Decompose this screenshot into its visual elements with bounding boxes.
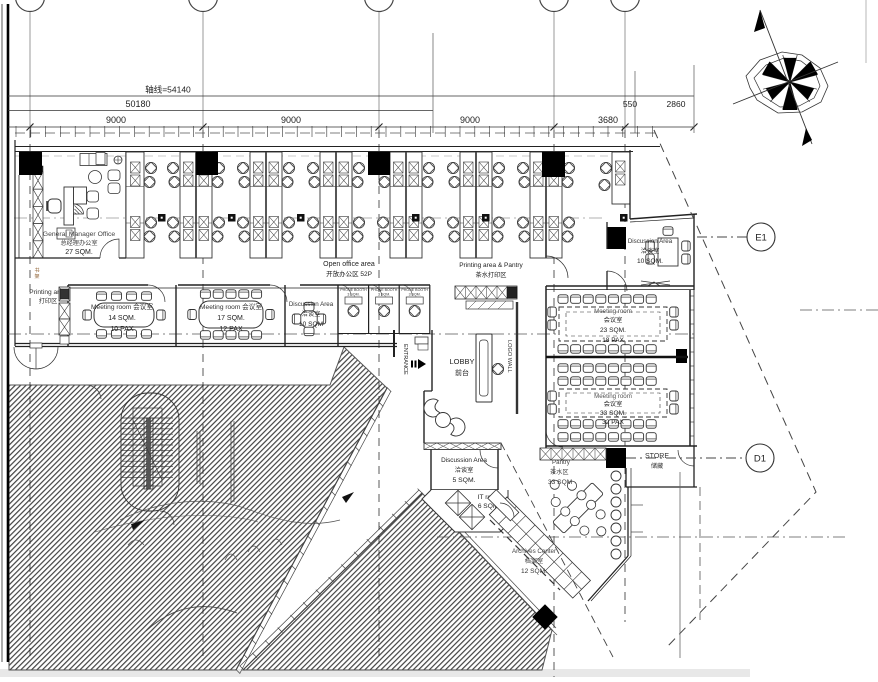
- svg-text:PHONE BOOTH: PHONE BOOTH: [340, 288, 367, 292]
- svg-text:架: 架: [34, 274, 39, 280]
- svg-text:洽谈室: 洽谈室: [641, 247, 660, 255]
- svg-text:书: 书: [34, 267, 39, 274]
- svg-text:Discussion Area: Discussion Area: [441, 457, 487, 464]
- svg-text:打印区: 打印区: [39, 297, 58, 305]
- svg-text:3 SQM.: 3 SQM.: [347, 293, 359, 297]
- svg-text:Meeting room 会议室: Meeting room 会议室: [91, 302, 153, 311]
- svg-text:茶水区: 茶水区: [550, 468, 569, 476]
- svg-text:9000: 9000: [281, 115, 301, 125]
- svg-text:开放办公区 52P: 开放办公区 52P: [326, 269, 372, 278]
- svg-text:3 SQM.: 3 SQM.: [409, 293, 421, 297]
- svg-text:E1: E1: [755, 233, 767, 244]
- svg-text:3 SQM.: 3 SQM.: [378, 293, 390, 297]
- svg-text:12 SQM.: 12 SQM.: [521, 568, 547, 575]
- svg-text:D1: D1: [754, 454, 766, 465]
- svg-text:14 SQM.: 14 SQM.: [108, 315, 136, 322]
- svg-text:前台: 前台: [455, 368, 469, 377]
- svg-text:Discussion Area: Discussion Area: [289, 301, 334, 308]
- svg-text:50180: 50180: [125, 99, 150, 109]
- svg-text:总经理办公室: 总经理办公室: [60, 239, 97, 247]
- svg-text:12 PAX: 12 PAX: [219, 326, 243, 333]
- svg-text:32 PAX: 32 PAX: [602, 419, 624, 426]
- svg-text:Pantry: Pantry: [552, 459, 571, 466]
- svg-text:Meeting room: Meeting room: [594, 308, 632, 315]
- svg-text:10 PAX: 10 PAX: [110, 326, 134, 333]
- svg-text:会议室: 会议室: [604, 316, 623, 324]
- svg-text:27 SQM.: 27 SQM.: [65, 249, 93, 256]
- svg-text:LOBBY: LOBBY: [449, 357, 474, 366]
- svg-text:PHONE BOOTH: PHONE BOOTH: [401, 288, 428, 292]
- svg-text:Archives Center: Archives Center: [512, 548, 556, 555]
- svg-text:Printing area & Pantry: Printing area & Pantry: [459, 262, 523, 269]
- svg-text:17 SQM.: 17 SQM.: [217, 315, 245, 322]
- svg-text:储藏: 储藏: [651, 462, 663, 470]
- svg-text:茶水打印区: 茶水打印区: [476, 271, 507, 279]
- svg-text:STORE: STORE: [645, 453, 669, 460]
- svg-text:9000: 9000: [460, 115, 480, 125]
- svg-text:LOGO WALL: LOGO WALL: [506, 340, 512, 373]
- svg-text:18 PAX: 18 PAX: [602, 337, 624, 344]
- svg-text:2860: 2860: [667, 99, 686, 109]
- svg-text:5 SQM.: 5 SQM.: [452, 477, 475, 484]
- svg-text:会议室: 会议室: [604, 400, 623, 408]
- svg-text:Meeting room: Meeting room: [594, 393, 632, 400]
- svg-text:Meeting room 会议室: Meeting room 会议室: [200, 302, 262, 311]
- svg-text:3680: 3680: [598, 115, 618, 125]
- svg-text:10 SQM: 10 SQM: [299, 321, 323, 328]
- svg-text:轴线=54140: 轴线=54140: [145, 85, 191, 95]
- svg-text:Open office area: Open office area: [323, 261, 375, 268]
- svg-text:9000: 9000: [106, 115, 126, 125]
- svg-text:洽谈室: 洽谈室: [302, 310, 321, 318]
- svg-text:PHONE BOOTH: PHONE BOOTH: [371, 288, 398, 292]
- svg-text:10 SQM.: 10 SQM.: [637, 258, 663, 265]
- svg-text:23 SQM.: 23 SQM.: [600, 327, 626, 334]
- svg-text:洽谈室: 洽谈室: [455, 466, 474, 474]
- svg-text:档案室: 档案室: [525, 557, 544, 565]
- svg-text:33 SQM: 33 SQM: [548, 479, 572, 486]
- svg-text:General Manager Office: General Manager Office: [43, 231, 116, 238]
- svg-text:33 SQM.: 33 SQM.: [600, 410, 626, 417]
- svg-text:Discussion Area: Discussion Area: [628, 238, 673, 245]
- svg-text:ENTRANCE: ENTRANCE: [402, 344, 408, 375]
